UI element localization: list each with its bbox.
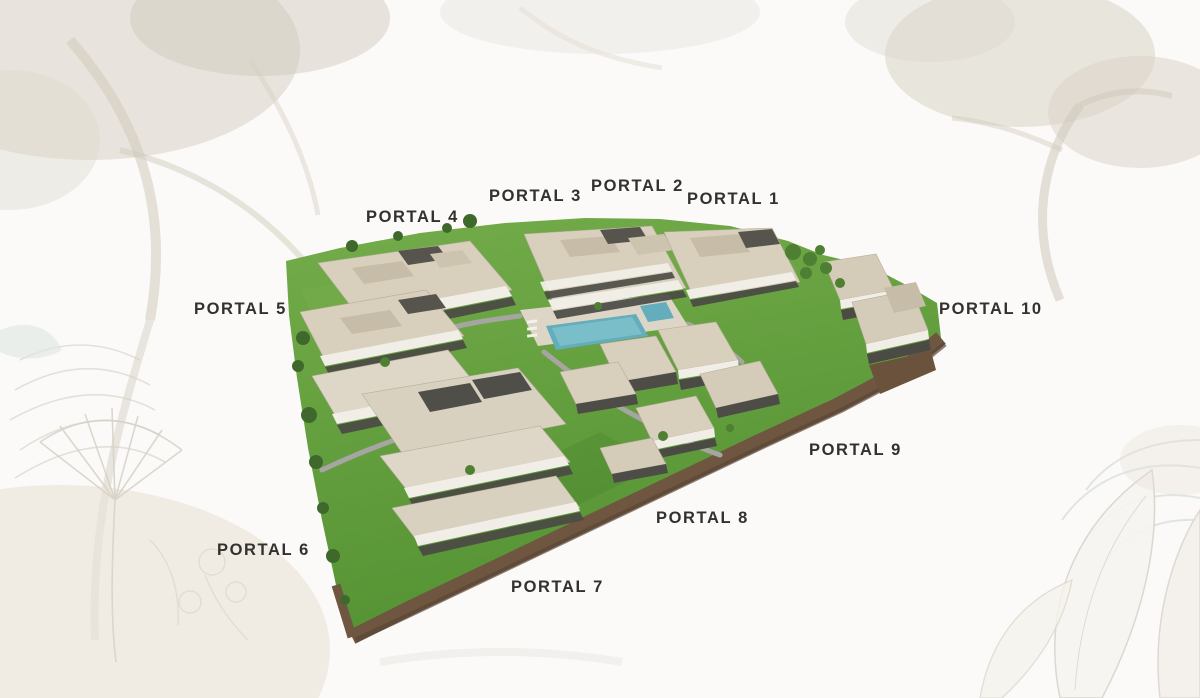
site-plan-stage: PORTAL 1 PORTAL 2 PORTAL 3 PORTAL 4 PORT… [0,0,1200,698]
portal-6-label: PORTAL 6 [217,542,310,559]
portal-4-label: PORTAL 4 [366,209,459,226]
portal-1-label: PORTAL 1 [687,191,780,208]
portal-3-label: PORTAL 3 [489,188,582,205]
portal-2-label: PORTAL 2 [591,178,684,195]
portal-7-label: PORTAL 7 [511,579,604,596]
portal-5-label: PORTAL 5 [194,301,287,318]
portal-10-label: PORTAL 10 [939,301,1043,318]
portal-8-label: PORTAL 8 [656,510,749,527]
portal-9-label: PORTAL 9 [809,442,902,459]
